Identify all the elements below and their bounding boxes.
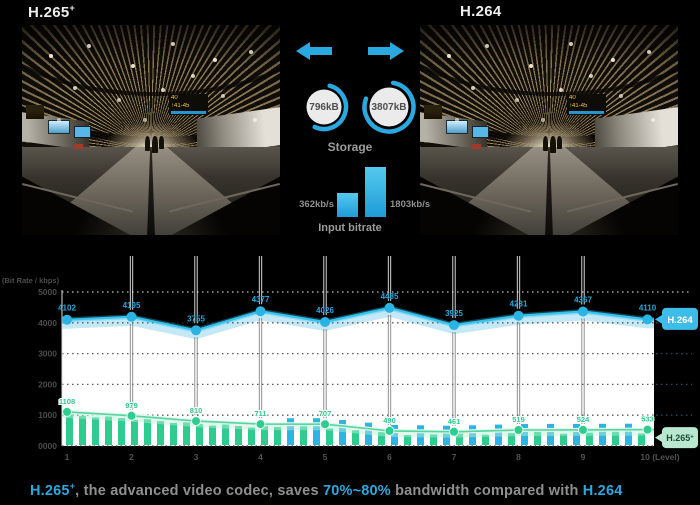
svg-text:2: 2 [129, 452, 134, 462]
svg-text:4367: 4367 [574, 296, 592, 305]
svg-text:4000: 4000 [38, 318, 57, 328]
caption-mid1: , the advanced video codec, saves [75, 483, 323, 499]
svg-text:711: 711 [254, 409, 266, 418]
infographic: H.265+ H.264 40 ↑41-45 [0, 0, 700, 505]
left-arrow-icon [296, 42, 332, 60]
svg-text:H.265+: H.265+ [666, 433, 694, 443]
svg-text:3000: 3000 [38, 349, 57, 359]
storage-donut-h265plus: 796kB [294, 77, 354, 137]
svg-text:4231: 4231 [510, 300, 528, 309]
h265plus-title-sup: + [70, 3, 76, 13]
svg-text:5000: 5000 [38, 287, 57, 297]
photo-gate-sign-strip [171, 111, 206, 114]
photo-red-sign [472, 144, 481, 149]
svg-text:10 (Level): 10 (Level) [640, 452, 679, 462]
photo-screen [472, 126, 489, 139]
photo-person [557, 136, 562, 149]
svg-text:9: 9 [581, 452, 586, 462]
h265plus-sample-image: 40 ↑41-45 [22, 25, 280, 235]
photo-person [159, 136, 164, 149]
caption: H.265+, the advanced video codec, saves … [30, 481, 622, 499]
caption-mid2: bandwidth compared with [391, 483, 583, 499]
h264-title: H.264 [460, 3, 502, 20]
h265plus-title-text: H.265 [28, 4, 70, 21]
svg-text:4195: 4195 [123, 301, 141, 310]
svg-text:0000: 0000 [38, 441, 57, 451]
svg-text:707: 707 [319, 409, 332, 418]
svg-text:4: 4 [258, 452, 263, 462]
svg-text:7: 7 [452, 452, 457, 462]
h264-sample-image: 40 ↑41-45 [420, 25, 678, 235]
svg-text:5: 5 [323, 452, 328, 462]
svg-text:519: 519 [512, 415, 525, 424]
svg-text:4110: 4110 [639, 303, 657, 312]
caption-highlight: 70%~80% [323, 483, 391, 499]
svg-text:H.264: H.264 [667, 315, 693, 326]
caption-end-codec: H.264 [583, 483, 623, 499]
svg-text:3755: 3755 [187, 314, 205, 323]
photo-screen [74, 126, 91, 139]
comparison-panel: 796kB 3807kB Storage 362kb/s 1803kb/s In… [280, 30, 420, 240]
svg-text:2000: 2000 [38, 379, 57, 389]
storage-value-h264: 3807kB [359, 77, 419, 137]
svg-text:1108: 1108 [59, 397, 75, 406]
svg-text:3: 3 [194, 452, 199, 462]
bitrate-bar-h264 [365, 167, 386, 217]
photo-gate-sign-line1: 40 [569, 95, 604, 103]
svg-text:4485: 4485 [381, 292, 399, 301]
bitrate-value-h264: 1803kb/s [390, 199, 430, 210]
svg-text:4026: 4026 [316, 306, 334, 315]
photo-ceiling-lights [420, 25, 422, 27]
photo-ceiling-lights [22, 25, 24, 27]
photo-screen [446, 120, 469, 135]
svg-text:979: 979 [125, 401, 138, 410]
photo-person [550, 136, 556, 153]
svg-text:1000: 1000 [38, 410, 57, 420]
photo-red-sign [74, 144, 83, 149]
svg-text:3925: 3925 [445, 309, 463, 318]
storage-value-h265plus: 796kB [294, 77, 354, 137]
svg-text:6: 6 [387, 452, 392, 462]
bitrate-label: Input bitrate [280, 222, 420, 234]
svg-text:810: 810 [190, 406, 203, 415]
svg-text:(Bit Rate / kbps): (Bit Rate / kbps) [2, 276, 60, 285]
photo-person [145, 136, 151, 151]
photo-person [543, 136, 549, 151]
bitrate-chart: 500040003000200010000000(Bit Rate / kbps… [0, 250, 700, 478]
right-arrow-icon [368, 42, 404, 60]
photo-gate-sign-line2: ↑41-45 [569, 103, 604, 111]
photo-gate-sign-line2: ↑41-45 [171, 103, 206, 111]
bitrate-value-h265plus: 362kb/s [299, 199, 334, 210]
storage-label: Storage [280, 140, 420, 154]
photo-gate-sign-strip [569, 111, 604, 114]
photo-screen [48, 120, 71, 135]
svg-text:490: 490 [383, 416, 396, 425]
bitrate-bar-h265plus [337, 193, 358, 217]
h265plus-title: H.265+ [28, 3, 75, 21]
storage-donut-h264: 3807kB [359, 77, 419, 137]
svg-text:4377: 4377 [252, 295, 270, 304]
svg-text:8: 8 [516, 452, 521, 462]
svg-text:524: 524 [577, 415, 590, 424]
photo-person [152, 136, 158, 153]
photo-gate-sign-line1: 40 [171, 95, 206, 103]
photo-small-sign [424, 105, 442, 120]
caption-codec: H.265 [30, 483, 70, 499]
bitrate-chart-svg: 500040003000200010000000(Bit Rate / kbps… [0, 250, 700, 478]
svg-text:1: 1 [65, 452, 70, 462]
photo-gate-sign: 40 ↑41-45 [169, 94, 208, 115]
svg-text:461: 461 [448, 417, 461, 426]
svg-text:533: 533 [641, 415, 654, 424]
svg-text:4102: 4102 [58, 304, 76, 313]
photo-small-sign [26, 105, 44, 120]
photo-gate-sign: 40 ↑41-45 [567, 94, 606, 115]
